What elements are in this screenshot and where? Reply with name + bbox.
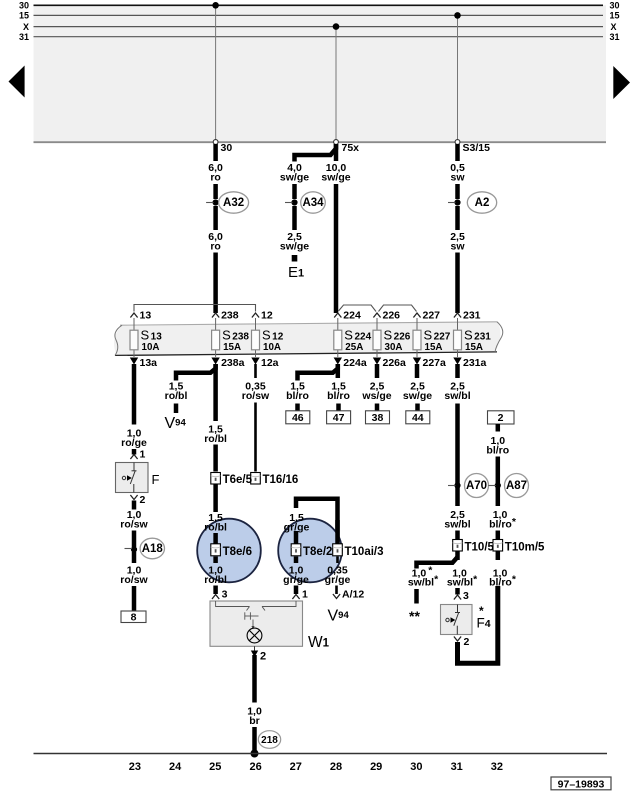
svg-text:A/12: A/12 — [342, 589, 364, 601]
svg-text:sw/bl*: sw/bl* — [408, 574, 439, 589]
svg-text:ro/bl: ro/bl — [204, 433, 227, 445]
svg-text:15A: 15A — [425, 342, 443, 353]
svg-text:A34: A34 — [302, 197, 324, 209]
svg-text:25: 25 — [209, 761, 221, 773]
svg-text:sw/ge: sw/ge — [280, 241, 309, 253]
svg-text:15: 15 — [19, 11, 29, 21]
svg-text:32: 32 — [491, 761, 503, 773]
svg-text:30A: 30A — [385, 342, 403, 353]
svg-text:75x: 75x — [342, 142, 360, 154]
svg-text:224: 224 — [343, 310, 361, 322]
svg-text:30: 30 — [610, 1, 620, 11]
svg-text:29: 29 — [370, 761, 382, 773]
svg-text:V94: V94 — [165, 415, 187, 432]
svg-text:28: 28 — [330, 761, 342, 773]
svg-text:2: 2 — [140, 494, 146, 506]
svg-text:sw/ge: sw/ge — [321, 172, 350, 184]
svg-text:26: 26 — [249, 761, 261, 773]
svg-text:23: 23 — [129, 761, 141, 773]
svg-text:V94: V94 — [328, 608, 350, 625]
svg-text:X: X — [23, 22, 29, 32]
svg-text:1: 1 — [302, 589, 308, 601]
svg-text:227: 227 — [423, 310, 441, 322]
svg-text:30: 30 — [410, 761, 422, 773]
svg-text:ws/ge: ws/ge — [361, 390, 391, 402]
svg-text:T10m/5: T10m/5 — [505, 542, 545, 554]
svg-text:sw: sw — [450, 172, 465, 184]
svg-text:A18: A18 — [142, 543, 164, 555]
svg-text:ro/sw: ro/sw — [242, 390, 270, 402]
svg-text:T10ai/3: T10ai/3 — [345, 546, 384, 558]
svg-text:10A: 10A — [142, 342, 160, 353]
svg-text:T6e/5: T6e/5 — [223, 474, 253, 486]
svg-text:226: 226 — [383, 310, 401, 322]
svg-text:S3/15: S3/15 — [463, 142, 491, 154]
svg-text:sw/bl*: sw/bl* — [447, 574, 478, 589]
svg-text:ro/bl: ro/bl — [165, 390, 188, 402]
svg-text:gr/ge: gr/ge — [283, 574, 309, 586]
svg-text:E1: E1 — [288, 264, 304, 281]
svg-text:13: 13 — [140, 310, 152, 322]
svg-text:bl/ro*: bl/ro* — [489, 516, 517, 531]
svg-text:A70: A70 — [466, 480, 487, 492]
svg-text:T10/5: T10/5 — [465, 542, 495, 554]
svg-text:231a: 231a — [463, 357, 487, 369]
svg-text:224a: 224a — [343, 357, 367, 369]
svg-text:bl/ro: bl/ro — [486, 445, 509, 457]
svg-text:F: F — [152, 472, 160, 487]
svg-text:31: 31 — [451, 761, 463, 773]
svg-text:25A: 25A — [345, 342, 363, 353]
svg-text:sw/bl: sw/bl — [444, 390, 470, 402]
svg-text:bl/ro: bl/ro — [286, 390, 309, 402]
svg-text:T8e/6: T8e/6 — [223, 546, 252, 558]
svg-text:T16/16: T16/16 — [263, 474, 299, 486]
svg-text:A87: A87 — [506, 480, 527, 492]
svg-text:12: 12 — [261, 310, 273, 322]
svg-text:226a: 226a — [383, 357, 407, 369]
svg-text:8: 8 — [131, 611, 137, 623]
svg-text:30: 30 — [221, 142, 233, 154]
svg-text:F4: F4 — [477, 616, 491, 631]
svg-text:A2: A2 — [475, 197, 490, 209]
svg-text:A32: A32 — [223, 197, 244, 209]
svg-text:3: 3 — [463, 590, 469, 602]
svg-text:27: 27 — [290, 761, 302, 773]
svg-text:sw/ge: sw/ge — [403, 390, 432, 402]
svg-text:238: 238 — [221, 310, 239, 322]
svg-text:bl/ro*: bl/ro* — [489, 574, 517, 589]
svg-text:sw: sw — [450, 241, 465, 253]
svg-text:30: 30 — [19, 1, 29, 11]
svg-text:38: 38 — [372, 412, 384, 424]
svg-text:ro/bl: ro/bl — [204, 522, 227, 534]
svg-text:15A: 15A — [465, 342, 483, 353]
svg-text:47: 47 — [333, 412, 345, 424]
svg-text:44: 44 — [412, 412, 424, 424]
svg-text:bl/ro: bl/ro — [327, 390, 350, 402]
svg-text:ro/sw: ro/sw — [120, 574, 148, 586]
svg-text:X: X — [611, 22, 617, 32]
svg-text:238a: 238a — [221, 357, 245, 369]
svg-text:W1: W1 — [308, 634, 330, 651]
svg-text:12a: 12a — [261, 357, 279, 369]
svg-text:218: 218 — [261, 735, 278, 746]
svg-text:231: 231 — [463, 310, 481, 322]
svg-text:2: 2 — [260, 651, 266, 663]
svg-text:227a: 227a — [423, 357, 447, 369]
svg-text:T8e/2: T8e/2 — [303, 546, 332, 558]
svg-text:**: ** — [409, 608, 420, 624]
svg-text:24: 24 — [169, 761, 182, 773]
svg-text:ro/bl: ro/bl — [204, 574, 227, 586]
svg-text:ro/sw: ro/sw — [120, 519, 148, 531]
svg-text:sw/ge: sw/ge — [280, 172, 309, 184]
svg-text:10A: 10A — [263, 342, 281, 353]
svg-text:46: 46 — [292, 412, 304, 424]
svg-text:2: 2 — [464, 636, 470, 648]
svg-text:ro: ro — [210, 172, 221, 184]
svg-text:1: 1 — [140, 449, 146, 461]
svg-text:gr/ge: gr/ge — [325, 574, 351, 586]
svg-text:31: 31 — [610, 32, 620, 42]
svg-text:15: 15 — [610, 11, 620, 21]
svg-text:ro: ro — [210, 241, 221, 253]
svg-text:2: 2 — [498, 412, 504, 424]
svg-text:br: br — [249, 715, 260, 727]
svg-text:13a: 13a — [140, 357, 158, 369]
svg-text:sw/bl: sw/bl — [444, 519, 470, 531]
svg-text:97–19893: 97–19893 — [558, 778, 605, 790]
svg-text:3: 3 — [222, 589, 228, 601]
svg-text:31: 31 — [19, 32, 29, 42]
svg-text:15A: 15A — [223, 342, 241, 353]
svg-text:ro/ge: ro/ge — [121, 437, 147, 449]
